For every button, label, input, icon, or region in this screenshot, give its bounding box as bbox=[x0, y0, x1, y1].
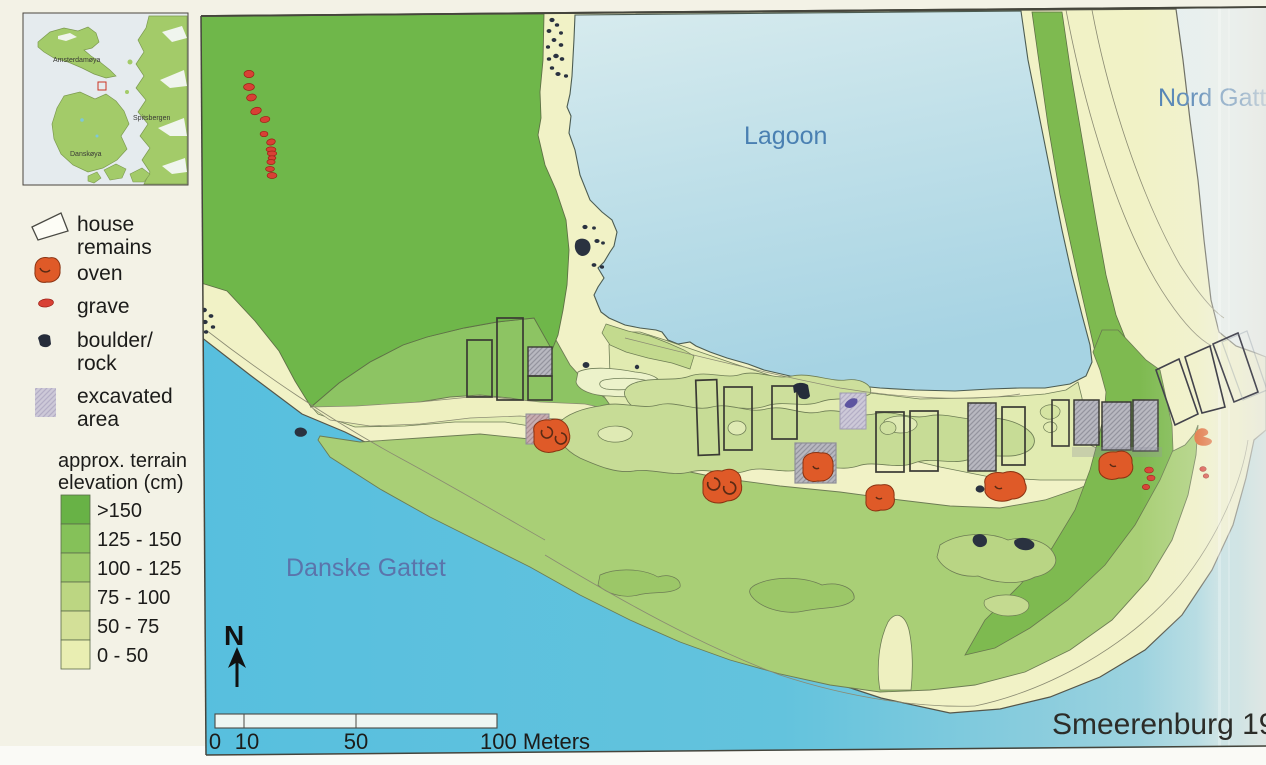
svg-text:remains: remains bbox=[77, 236, 152, 259]
svg-text:boulder/: boulder/ bbox=[77, 329, 153, 352]
svg-text:125 - 150: 125 - 150 bbox=[97, 529, 182, 551]
svg-text:rock: rock bbox=[77, 352, 117, 375]
svg-text:100 Meters: 100 Meters bbox=[480, 729, 590, 754]
svg-text:area: area bbox=[77, 408, 119, 431]
svg-text:50 - 75: 50 - 75 bbox=[97, 616, 159, 638]
svg-text:elevation (cm): elevation (cm) bbox=[58, 472, 184, 494]
svg-text:excavated: excavated bbox=[77, 385, 173, 408]
svg-text:Lagoon: Lagoon bbox=[744, 122, 827, 150]
svg-text:0: 0 bbox=[209, 729, 221, 754]
svg-text:50: 50 bbox=[344, 729, 368, 754]
svg-text:Spitsbergen: Spitsbergen bbox=[133, 115, 170, 122]
svg-text:oven: oven bbox=[77, 262, 123, 285]
svg-text:N: N bbox=[224, 620, 244, 651]
svg-text:75 - 100: 75 - 100 bbox=[97, 587, 170, 609]
svg-text:10: 10 bbox=[235, 729, 259, 754]
svg-text:0 - 50: 0 - 50 bbox=[97, 645, 148, 667]
svg-text:approx. terrain: approx. terrain bbox=[58, 450, 187, 472]
svg-text:Amsterdamøya: Amsterdamøya bbox=[53, 57, 101, 64]
svg-text:Danskøya: Danskøya bbox=[70, 151, 102, 158]
svg-text:house: house bbox=[77, 213, 134, 236]
svg-text:Danske Gattet: Danske Gattet bbox=[286, 554, 446, 582]
svg-text:100 - 125: 100 - 125 bbox=[97, 558, 182, 580]
svg-text:>150: >150 bbox=[97, 500, 142, 522]
svg-text:Smeerenburg 19: Smeerenburg 19 bbox=[1052, 708, 1266, 741]
svg-text:grave: grave bbox=[77, 295, 130, 318]
